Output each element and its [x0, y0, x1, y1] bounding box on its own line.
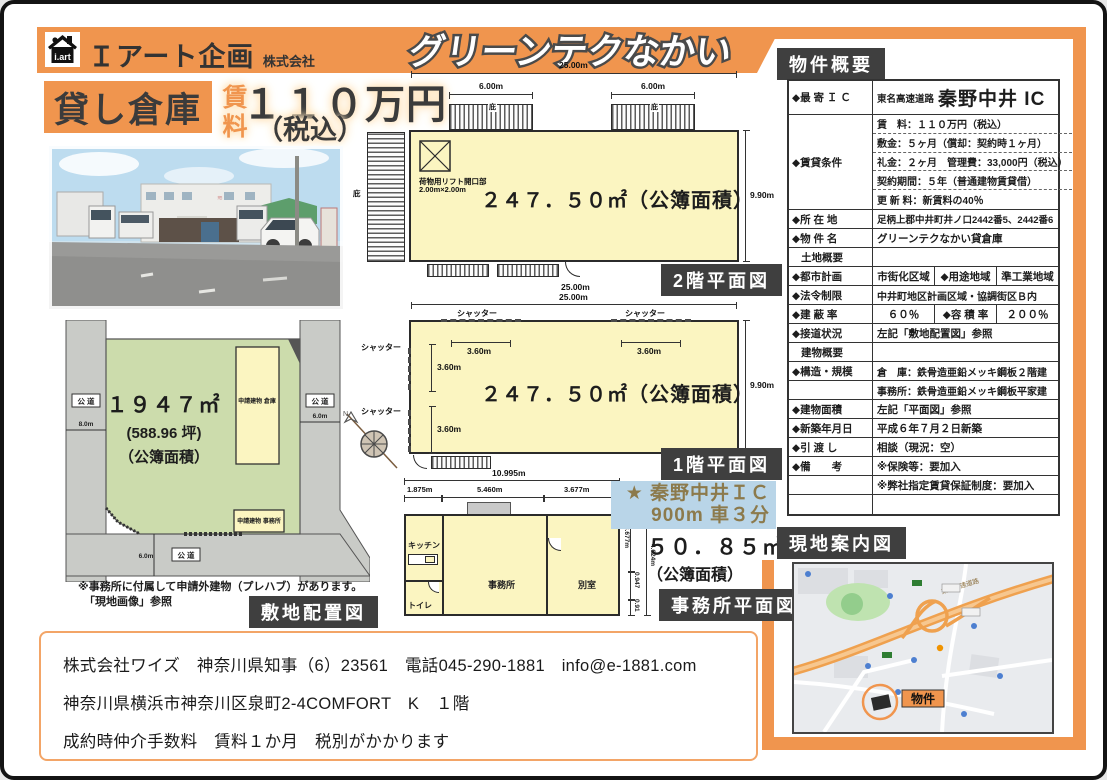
svg-text:公 道: 公 道: [311, 396, 329, 406]
road-dim-right: 6.0m: [313, 413, 328, 420]
frame-right-bar: [1073, 27, 1086, 750]
table-row: ◆最 寄 Ｉ Ｃ 東名高速道路秦野中井 IC: [789, 81, 1058, 115]
site-area-m2: １９４７㎡: [107, 393, 222, 417]
overview-table: ◆最 寄 Ｉ Ｃ 東名高速道路秦野中井 IC ◆賃貸条件 賃 料：１１０万円（税…: [787, 79, 1060, 516]
floor1-shutter-label-top2: シャッター: [625, 308, 665, 319]
other-room-label: 別室: [578, 578, 596, 591]
office-seg2: 5.460m: [477, 485, 502, 494]
kitchen-label: キッチン: [408, 540, 440, 551]
table-row: ◆建物面積 左記「平面図」参照: [789, 400, 1058, 419]
office-room-label: 事務所: [488, 578, 515, 591]
agency-line2: 神奈川県横浜市神奈川区泉町2-4COMFORT K １階: [63, 685, 736, 723]
office-rdim2: 0.947: [633, 572, 640, 588]
floor1-shutter-left2: [408, 410, 411, 452]
office-plan-caption: 事務所平面図: [659, 589, 809, 621]
agency-info-box: 株式会社ワイズ 神奈川県知事（6）23561 電話045-290-1881 in…: [39, 631, 758, 761]
access-line2: 900m 車３分: [611, 505, 770, 527]
floor2-eave-left-label: 庇: [353, 188, 361, 199]
table-row: 事務所：鉄骨造亜鉛メッキ鋼板平家建: [789, 381, 1058, 400]
floor2-dim-top-line: [411, 73, 737, 74]
property-marker-label: 物件: [911, 691, 935, 706]
office-area-text: ５０．８５㎡ （公簿面積）: [647, 531, 785, 585]
company-name: Ｉアート企画 株式会社: [88, 35, 315, 74]
site-area-note: （公簿面積）: [119, 448, 209, 466]
floor1-shutter-dim-1: 3.60m: [467, 346, 491, 356]
compass-icon: N: [341, 408, 403, 474]
table-row: 土地概要: [789, 248, 1058, 267]
floor1-dim-top-line: [411, 304, 737, 305]
table-row: ◆賃貸条件 賃 料：１１０万円（税込） 敷金：５ヶ月（償却：契約時１ヶ月） 礼金…: [789, 115, 1058, 210]
svg-text:公 道: 公 道: [177, 550, 195, 560]
office-area-note: （公簿面積）: [647, 561, 785, 585]
property-marker: 物件: [902, 690, 944, 707]
compass-n: N: [343, 411, 348, 418]
lease-type-badge: 貸し倉庫: [44, 81, 212, 133]
office-seg1: 1.875m: [407, 485, 432, 494]
logo-text: i.art: [54, 52, 71, 62]
floor2-door: [565, 262, 580, 277]
agency-line3: 成約時仲介手数料 賃料１か月 税別がかかります: [63, 723, 736, 761]
room-divider: [546, 516, 548, 614]
office-rdim1: 3.677m: [623, 526, 630, 548]
table-row: ◆備 考 ※保険等：要加入: [789, 457, 1058, 476]
flyer-page: i.art Ｉアート企画 株式会社 グリーンテクなかい 貸し倉庫 賃料 １１０万…: [0, 0, 1107, 780]
table-row: ◆物 件 名 グリーンテクなかい貸倉庫: [789, 229, 1058, 248]
floor2-stairs-1: [427, 264, 489, 277]
floor2-dim-right-line: [745, 130, 746, 262]
table-row: ◆法令制限 中井町地区計画区域・協調街区Ｂ内: [789, 286, 1058, 305]
floor1-main-area: 3.60m 3.60m 3.60m 3.60m ２４７．５０㎡（公簿面積）: [409, 320, 739, 454]
road-dim-left: 8.0m: [79, 421, 94, 428]
site-building-office: 申請建物 事務所: [237, 517, 281, 525]
toilet-door: [428, 582, 439, 593]
floor2-eave-dimline-2: [611, 94, 695, 95]
table-row: ◆新築年月日 平成６年７月２日新築: [789, 419, 1058, 438]
table-row: ◆所 在 地 足柄上郡中井町井ノ口2442番5、2442番6: [789, 210, 1058, 229]
floor1-door: [413, 455, 427, 469]
site-area-tsubo: (588.96 坪): [126, 425, 201, 442]
overview-title: 物件概要: [777, 48, 885, 80]
floor2-area: ２４７．５０㎡（公簿面積）: [481, 184, 754, 213]
agency-line1: 株式会社ワイズ 神奈川県知事（6）23561 電話045-290-1881 in…: [63, 647, 736, 685]
office-seg1-line: [404, 497, 442, 498]
floor2-eave-dim-1: 6.00m: [479, 81, 503, 91]
exterior-photo: ≋: [49, 146, 343, 309]
site-plan: 申請建物 倉庫 申請建物 事務所 １９４７㎡ (588.96 坪) （公簿面積）…: [44, 320, 370, 582]
floor1-shutter-label-top1: シャッター: [457, 308, 497, 319]
company-name-suffix: 株式会社: [263, 54, 315, 69]
table-row: ※弊社指定賃貸保証制度：要加入: [789, 476, 1058, 495]
company-logo: i.art: [45, 32, 80, 67]
table-row: ◆構造・規模 倉 庫：鉄骨造亜鉛メッキ鋼板２階建: [789, 362, 1058, 381]
office-rdim3-line: [630, 600, 631, 616]
office-seg3-line: [544, 497, 620, 498]
kitchen-counter: [408, 554, 438, 565]
floor1-shutter-dimline-1: [451, 342, 511, 343]
floor2-dim-top: 25.00m: [559, 60, 588, 70]
svg-text:≋: ≋: [217, 195, 223, 202]
company-name-main: Ｉアート企画: [88, 42, 254, 72]
floor1-shutter-dim-3: 3.60m: [437, 362, 461, 372]
table-row: ◆都市計画 市街化区域 ◆用途地域 準工業地域: [789, 267, 1058, 286]
site-plan-caption: 敷地配置図: [249, 596, 378, 628]
frame-bottom-bar: [762, 737, 1086, 750]
location-map: 東名高速道路 物件: [792, 562, 1054, 734]
floor1-shutter-dimline-2: [621, 342, 681, 343]
floor2-dim-bottom: 25.00m: [561, 282, 590, 292]
floor1-shutter-top1: [441, 319, 521, 322]
table-row: 建物概要: [789, 343, 1058, 362]
office-left-column: キッチン トイレ: [406, 516, 444, 614]
office-area-m2: ５０．８５㎡: [647, 531, 785, 561]
floor1-shutter-dimline-3: [431, 344, 432, 392]
floor1-shutter-dim-2: 3.60m: [637, 346, 661, 356]
floor1-shutter-label-left1: シャッター: [361, 342, 401, 353]
floor1-area: ２４７．５０㎡（公簿面積）: [481, 378, 754, 407]
access-line1: ★ 秦野中井ＩＣ: [611, 483, 770, 505]
office-seg3: 3.677m: [564, 485, 589, 494]
office-dim-total-line: [404, 480, 620, 481]
svg-text:公 道: 公 道: [77, 396, 95, 406]
floor2-eave-2: 庇: [611, 104, 695, 130]
access-badge: ★ 秦野中井ＩＣ 900m 車３分: [611, 481, 776, 529]
site-note-line1: ※事務所に付属して申請外建物（プレハブ）があります。: [78, 580, 362, 595]
table-row: [789, 495, 1058, 514]
site-building-warehouse: 申請建物 倉庫: [238, 397, 276, 405]
table-row: ◆引 渡 し 相談（現況：空）: [789, 438, 1058, 457]
floor1-dim-right-line: [745, 320, 746, 454]
map-canvas: 東名高速道路 物件: [794, 564, 1052, 732]
floor1-shutter-dimline-4: [431, 406, 432, 454]
house-logo-icon: i.art: [47, 34, 78, 65]
floor2-main-area: 荷物用リフト開口部 2.00m×2.00m ２４７．５０㎡（公簿面積）: [409, 130, 739, 262]
table-row: ◆建 蔽 率 ６０％ ◆容 積 率 ２００％: [789, 305, 1058, 324]
floor1-shutter-dim-4: 3.60m: [437, 424, 461, 434]
floor1-dim-top: 25.00m: [559, 292, 588, 302]
office-rdim2-line: [630, 572, 631, 600]
floor2-plan: 25.00m 6.00m 6.00m 庇 庇 庇 荷物用リフト開口部 2.00m…: [339, 60, 784, 296]
floor2-eave-dim-2: 6.00m: [641, 81, 665, 91]
road-dim-bottom: 6.0m: [139, 553, 154, 560]
office-dim-total: 10.995m: [492, 468, 526, 478]
floor1-shutter-left1: [408, 348, 411, 390]
floor1-shutter-top2: [611, 319, 691, 322]
floor2-stairs-2: [497, 264, 559, 277]
floor2-dim-right: 9.90m: [750, 190, 774, 200]
floor1-plan: 25.00m シャッター シャッター 3.60m 3.60m 3.60m 3.6…: [339, 292, 784, 486]
floor2-eave-dimline-1: [449, 94, 533, 95]
office-outline: キッチン トイレ 事務所 別室: [404, 514, 620, 616]
office-rdim3: 0.91: [633, 599, 640, 612]
toilet-label: トイレ: [408, 600, 432, 611]
cargo-lift-opening: [419, 140, 451, 172]
map-title: 現地案内図: [777, 527, 906, 559]
office-seg2-line: [442, 497, 544, 498]
lift-label-2: 2.00m×2.00m: [419, 185, 466, 194]
room-door: [548, 538, 561, 551]
floor1-dim-right: 9.90m: [750, 380, 774, 390]
table-row: ◆接道状況 左記「敷地配置図」参照: [789, 324, 1058, 343]
floor2-eave-left: [367, 132, 405, 262]
floor2-eave-1: 庇: [449, 104, 533, 130]
